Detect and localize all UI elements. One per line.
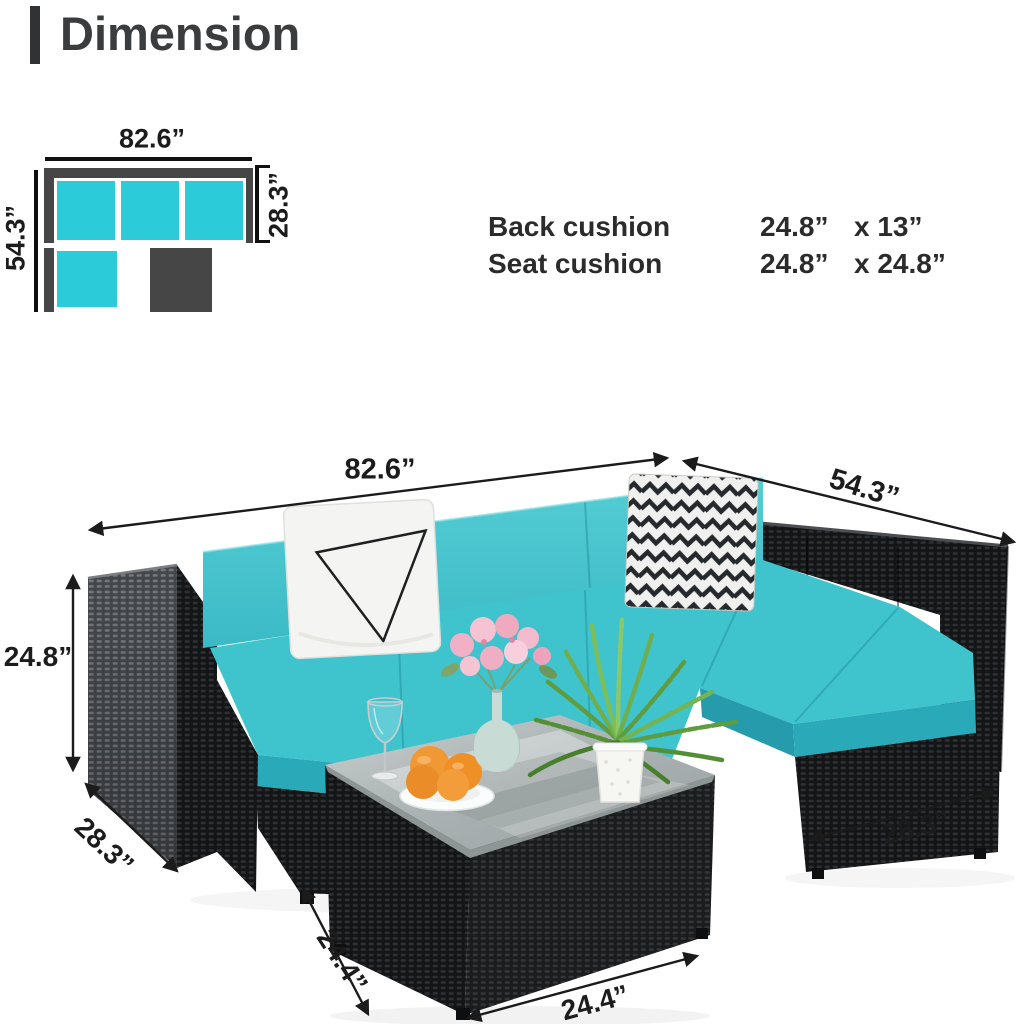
product-photo — [0, 430, 1024, 1024]
spec-label: Seat cushion — [488, 248, 760, 280]
schematic-seat-depth-label: 28.3” — [264, 172, 295, 238]
dim-label-sofa-width: 82.6” — [345, 454, 416, 487]
schematic-ottoman-seat — [54, 248, 120, 310]
schematic-seat-2 — [118, 178, 182, 243]
schematic-seat-3 — [182, 178, 246, 243]
schematic-seat-depth-cap-bottom — [255, 240, 270, 243]
page-title: Dimension — [60, 6, 300, 61]
dimension-infographic: Dimension 82.6” 54.3” 28.3” Back cushion… — [0, 0, 1024, 1024]
cushion-spec-table: Back cushion 24.8” x 13” Seat cushion 24… — [488, 208, 946, 282]
orange — [437, 769, 469, 801]
ottoman-foot — [974, 848, 986, 859]
chevron-pillow — [625, 474, 759, 611]
dim-label-sofa-height: 24.8” — [4, 641, 73, 673]
schematic-depth-line — [34, 170, 38, 312]
ottoman-foot — [812, 868, 824, 879]
schematic-table — [150, 248, 212, 312]
spec-label: Back cushion — [488, 211, 760, 243]
schematic-width-line — [45, 157, 252, 161]
spec-size: 24.8” — [760, 211, 854, 243]
ottoman-base — [795, 733, 1000, 872]
table-foot — [696, 928, 708, 939]
schematic-seat-depth-line — [255, 167, 259, 243]
schematic-seat-1 — [54, 178, 118, 243]
triangle-pillow — [283, 499, 441, 659]
schematic-depth-label: 54.3” — [1, 205, 32, 271]
orange — [406, 765, 440, 799]
title-accent-bar — [30, 6, 40, 64]
spec-row-back-cushion: Back cushion 24.8” x 13” — [488, 208, 946, 245]
schematic-side-rail — [44, 248, 54, 312]
schematic-seat-depth-cap-top — [255, 165, 270, 168]
spec-by: x 13” — [854, 211, 923, 243]
table-foot — [456, 1008, 470, 1020]
coffee-table — [325, 715, 715, 1020]
spec-by: x 24.8” — [854, 248, 946, 280]
schematic-width-label: 82.6” — [119, 124, 185, 155]
spec-row-seat-cushion: Seat cushion 24.8” x 24.8” — [488, 245, 946, 282]
sofa-left-armrest — [88, 565, 217, 868]
spec-size: 24.8” — [760, 248, 854, 280]
plant-pot — [593, 743, 647, 802]
